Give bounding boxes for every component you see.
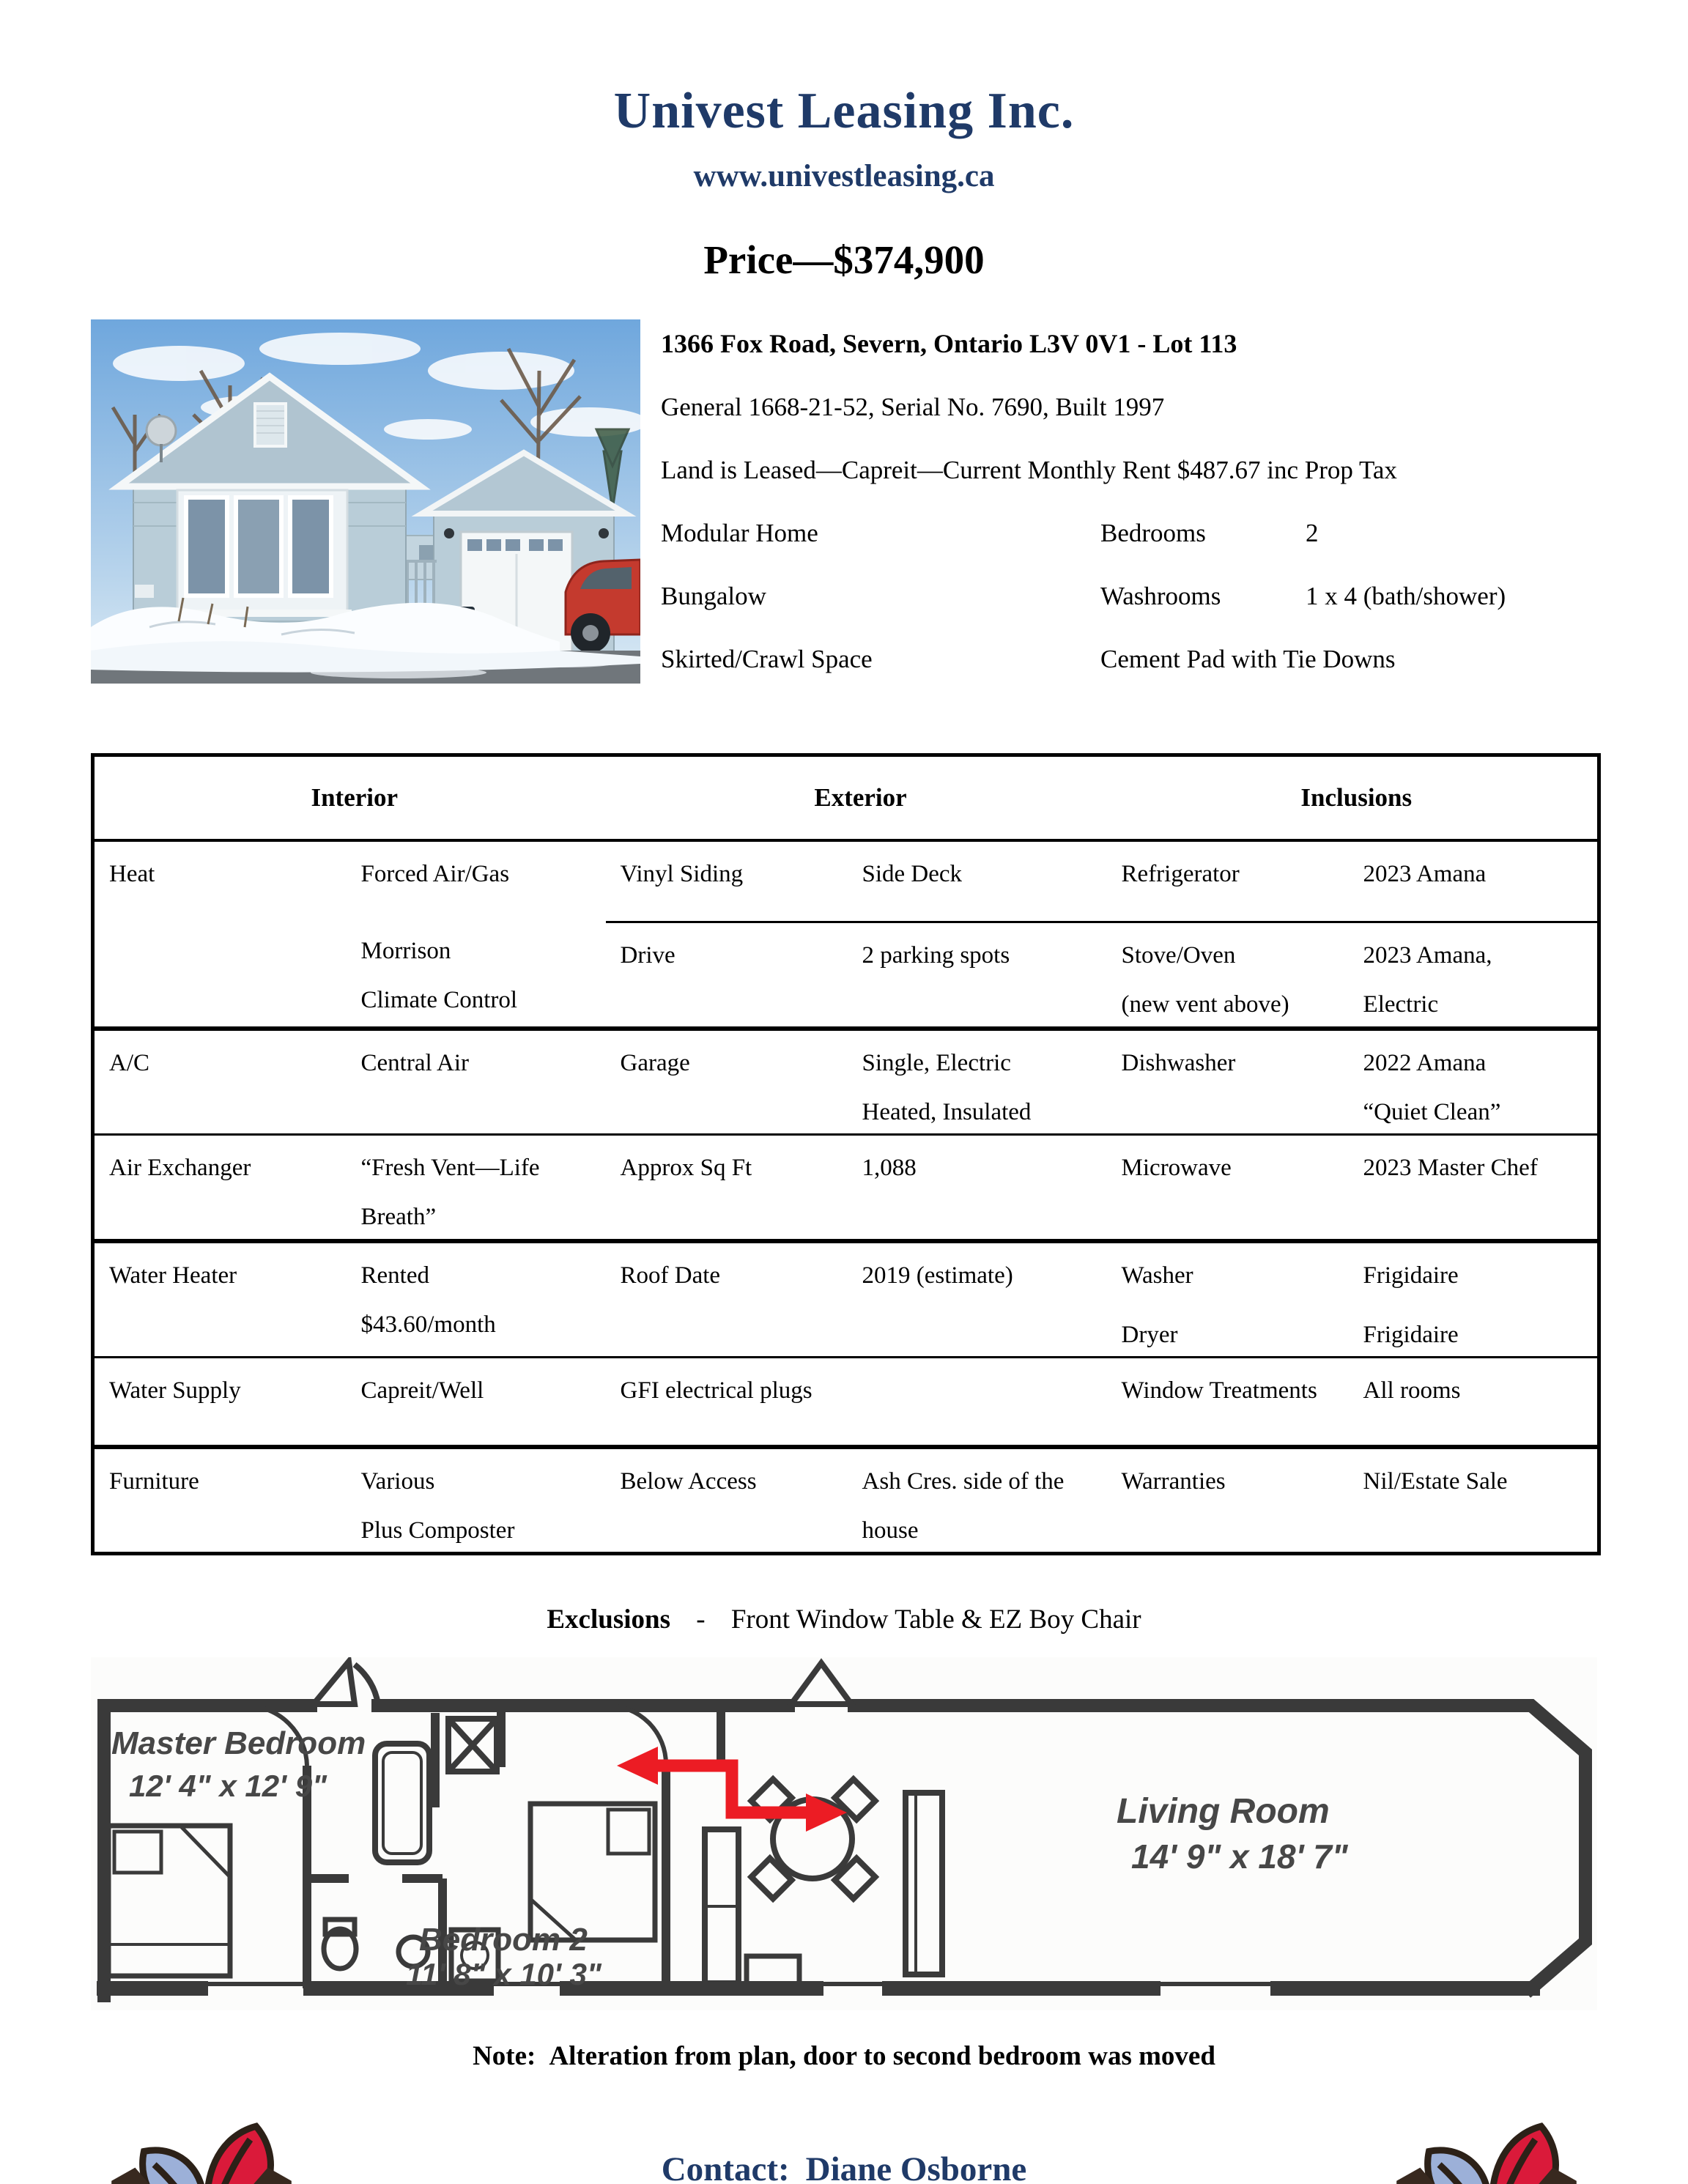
garage-label: Garage (606, 1029, 848, 1135)
warranties-value: Nil/Estate Sale (1349, 1447, 1599, 1554)
hero-section: 1366 Fox Road, Severn, Ontario L3V 0V1 -… (91, 319, 1597, 708)
water-heater-value-line2: $43.60/month (361, 1310, 600, 1340)
living-room-dims: 14' 9" x 18' 7" (1131, 1837, 1349, 1876)
garage-value-line2: Heated, Insulated (862, 1097, 1101, 1128)
contact-block: Contact:Diane Osborne 4120 Haines Street… (312, 2150, 1376, 2184)
fridge-value: 2023 Amana (1349, 840, 1599, 922)
furniture-value: Various Plus Composter (347, 1447, 606, 1554)
home-type: Modular Home (661, 519, 1100, 548)
property-photo (91, 319, 640, 684)
website-link[interactable]: www.univestleasing.ca (91, 158, 1597, 194)
note-line: Note:Alteration from plan, door to secon… (91, 2040, 1597, 2072)
furniture-value-line2: Plus Composter (361, 1516, 600, 1546)
garage-value-line1: Single, Electric (862, 1048, 1101, 1078)
contact-label: Contact: (662, 2150, 790, 2184)
company-logo-right (1376, 2104, 1597, 2184)
master-bedroom-label: Master Bedroom (111, 1725, 366, 1761)
roof-label: Roof Date (606, 1241, 848, 1358)
laundry-values: Frigidaire Frigidaire (1349, 1241, 1599, 1358)
window-treatments-value: All rooms (1349, 1358, 1599, 1447)
warranties-label: Warranties (1107, 1447, 1349, 1554)
property-details: 1366 Fox Road, Severn, Ontario L3V 0V1 -… (640, 319, 1597, 708)
water-heater-label: Water Heater (93, 1241, 347, 1358)
general-line: General 1668-21-52, Serial No. 7690, Bui… (661, 393, 1597, 422)
table-row: Water Heater Rented $43.60/month Roof Da… (93, 1241, 1599, 1358)
bedroom2-dims: 11' 8" x 10' 3" (406, 1957, 602, 1991)
heat-brand-line2: Climate Control (361, 985, 600, 1015)
exclusions-line: Exclusions - Front Window Table & EZ Boy… (91, 1604, 1597, 1635)
property-photo-illustration (91, 319, 640, 684)
stove-value-line1: 2023 Amana, (1363, 941, 1592, 971)
stove-label: Stove/Oven (new vent above) (1107, 922, 1349, 1029)
ac-value: Central Air (347, 1029, 606, 1135)
washer-label: Washer (1122, 1261, 1343, 1291)
hands-leaves-logo-icon (1376, 2104, 1597, 2184)
air-exchanger-value-line2: Breath” (361, 1202, 600, 1232)
heat-value: Forced Air/Gas Morrison Climate Control (347, 840, 606, 1029)
microwave-label: Microwave (1107, 1135, 1349, 1241)
bedroom2-label: Bedroom 2 (419, 1922, 588, 1958)
heat-label: Heat (93, 840, 347, 1029)
below-access-value-line2: house (862, 1516, 1101, 1546)
table-row: Furniture Various Plus Composter Below A… (93, 1447, 1599, 1554)
drive-label: Drive (606, 922, 848, 1029)
below-access-value-line1: Ash Cres. side of the (862, 1467, 1101, 1497)
ac-label: A/C (93, 1029, 347, 1135)
table-row: Air Exchanger “Fresh Vent—Life Breath” A… (93, 1135, 1599, 1241)
table-header-row: Interior Exterior Inclusions (93, 755, 1599, 840)
water-heater-value: Rented $43.60/month (347, 1241, 606, 1358)
exterior-header: Exterior (606, 755, 1107, 840)
heat-system: Forced Air/Gas (361, 859, 600, 889)
gfi-cell: GFI electrical plugs (606, 1358, 1107, 1447)
washer-value: Frigidaire (1363, 1261, 1592, 1291)
microwave-value: 2023 Master Chef (1349, 1135, 1599, 1241)
listing-sheet-page: Univest Leasing Inc. www.univestleasing.… (0, 0, 1688, 2184)
dishwasher-value-line2: “Quiet Clean” (1363, 1097, 1592, 1128)
sqft-label: Approx Sq Ft (606, 1135, 848, 1241)
contact-heading: Contact:Diane Osborne (312, 2150, 1376, 2184)
air-exchanger-value-line1: “Fresh Vent—Life (361, 1153, 600, 1183)
address-line: 1366 Fox Road, Severn, Ontario L3V 0V1 -… (661, 328, 1597, 359)
stove-value-line2: Electric (1363, 990, 1592, 1020)
lease-line: Land is Leased—Capreit—Current Monthly R… (661, 456, 1597, 485)
master-bedroom-dims: 12' 4" x 12' 9" (129, 1769, 327, 1803)
furniture-value-line1: Various (361, 1467, 600, 1497)
page-title: Univest Leasing Inc. (91, 0, 1597, 141)
dryer-value: Frigidaire (1363, 1320, 1592, 1350)
detail-row: Bungalow Washrooms 1 x 4 (bath/shower) (661, 582, 1597, 611)
table-row: Heat Forced Air/Gas Morrison Climate Con… (93, 840, 1599, 922)
stove-label-line2: (new vent above) (1122, 990, 1343, 1020)
siding-label: Vinyl Siding (606, 840, 848, 922)
drive-value: 2 parking spots (848, 922, 1107, 1029)
living-room-label: Living Room (1117, 1792, 1330, 1831)
stove-value: 2023 Amana, Electric (1349, 922, 1599, 1029)
dishwasher-label: Dishwasher (1107, 1029, 1349, 1135)
style-type: Bungalow (661, 582, 1100, 611)
bedrooms-label: Bedrooms (1100, 519, 1306, 548)
sqft-value: 1,088 (848, 1135, 1107, 1241)
note-label: Note: (473, 2041, 536, 2071)
detail-row: Skirted/Crawl Space Cement Pad with Tie … (661, 645, 1597, 674)
water-supply-value: Capreit/Well (347, 1358, 606, 1447)
inclusions-header: Inclusions (1107, 755, 1599, 840)
company-logo-left (91, 2104, 312, 2184)
roof-value: 2019 (estimate) (848, 1241, 1107, 1358)
washrooms-label: Washrooms (1100, 582, 1306, 611)
pad-type: Cement Pad with Tie Downs (1100, 645, 1597, 674)
dryer-label: Dryer (1122, 1320, 1343, 1350)
contact-name: Diane Osborne (806, 2150, 1027, 2184)
table-row: A/C Central Air Garage Single, Electric … (93, 1029, 1599, 1135)
dishwasher-value-line1: 2022 Amana (1363, 1048, 1592, 1078)
note-text: Alteration from plan, door to second bed… (549, 2041, 1215, 2071)
dishwasher-value: 2022 Amana “Quiet Clean” (1349, 1029, 1599, 1135)
heat-brand-line1: Morrison (361, 936, 600, 966)
air-exchanger-label: Air Exchanger (93, 1135, 347, 1241)
spec-table: Interior Exterior Inclusions Heat Forced… (91, 753, 1601, 1555)
stove-label-line1: Stove/Oven (1122, 941, 1343, 971)
garage-value: Single, Electric Heated, Insulated (848, 1029, 1107, 1135)
below-access-label: Below Access (606, 1447, 848, 1554)
exclusions-label: Exclusions (547, 1604, 670, 1635)
floor-plan: Master Bedroom 12' 4" x 12' 9" Bedroom 2… (91, 1657, 1597, 2014)
price-line: Price—$374,900 (91, 237, 1597, 283)
interior-header: Interior (93, 755, 606, 840)
floor-plan-drawing: Master Bedroom 12' 4" x 12' 9" Bedroom 2… (91, 1657, 1597, 2010)
heat-brand: Morrison Climate Control (361, 936, 600, 1016)
foundation-type: Skirted/Crawl Space (661, 645, 1100, 674)
footer: Contact:Diane Osborne 4120 Haines Street… (91, 2104, 1597, 2184)
exclusions-separator: - (696, 1604, 705, 1635)
table-row: Water Supply Capreit/Well GFI electrical… (93, 1358, 1599, 1447)
bedrooms-value: 2 (1306, 519, 1597, 548)
detail-row: Modular Home Bedrooms 2 (661, 519, 1597, 548)
laundry-labels: Washer Dryer (1107, 1241, 1349, 1358)
water-heater-value-line1: Rented (361, 1261, 600, 1291)
water-supply-label: Water Supply (93, 1358, 347, 1447)
fridge-label: Refrigerator (1107, 840, 1349, 922)
washrooms-value: 1 x 4 (bath/shower) (1306, 582, 1597, 611)
below-access-value: Ash Cres. side of the house (848, 1447, 1107, 1554)
hands-leaves-logo-icon (91, 2104, 312, 2184)
window-treatments-label: Window Treatments (1107, 1358, 1349, 1447)
air-exchanger-value: “Fresh Vent—Life Breath” (347, 1135, 606, 1241)
siding-value: Side Deck (848, 840, 1107, 922)
exclusions-text: Front Window Table & EZ Boy Chair (731, 1604, 1141, 1635)
furniture-label: Furniture (93, 1447, 347, 1554)
